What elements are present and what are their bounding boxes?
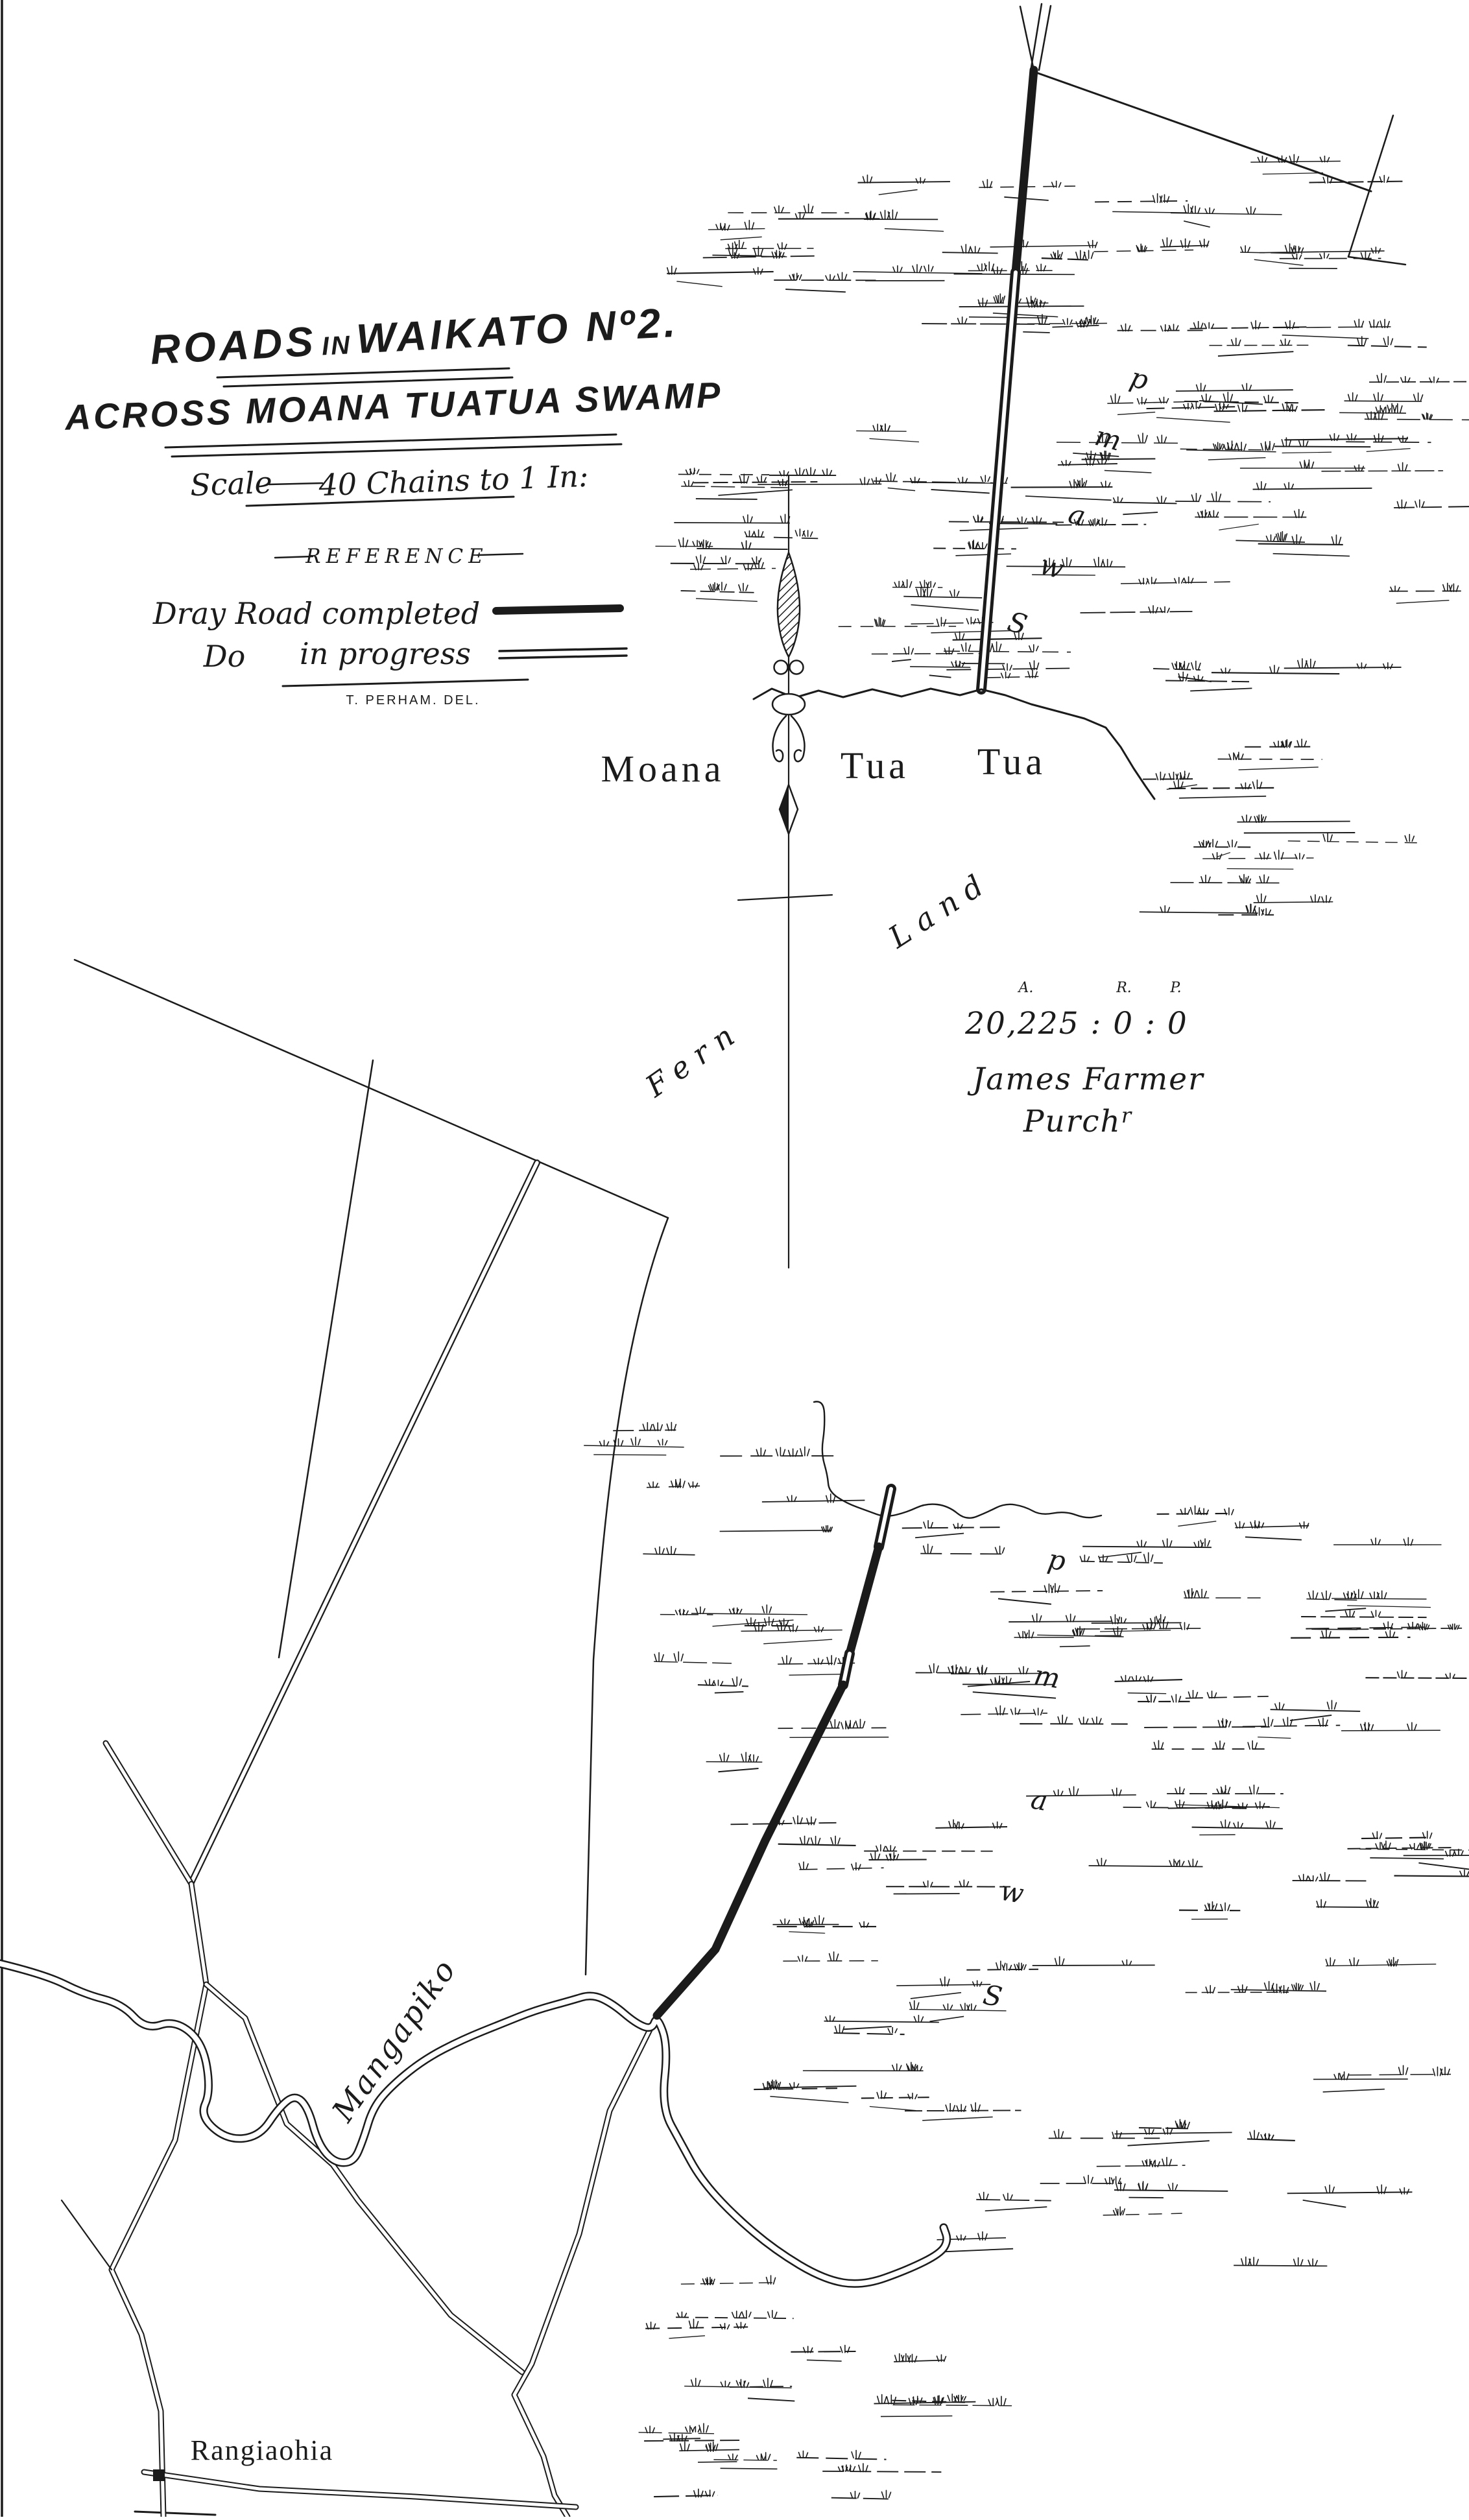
road-network [62,1743,657,2517]
survey-map-canvas: ROADSINWAIKATO Nº2. ACROSS MOANA TUATUA … [0,0,1469,2517]
river-label: Mangapiko [325,1952,464,2129]
needle-scroll [773,716,786,761]
swamp-tuft [1140,904,1258,913]
swamp-tuft [763,2080,856,2088]
swamp-tuft [1121,577,1230,584]
swamp-tuft [1186,442,1276,460]
swamp-tuft [1014,1630,1074,1638]
swamp-tuft [892,2394,966,2403]
swamp-tuft [1195,510,1307,530]
road-gap [144,2472,576,2507]
swamp-tuft [1020,1715,1127,1724]
swamp-tuft [655,538,713,547]
swamp-tuft [644,2434,742,2441]
swamp-tuft [1247,2130,1295,2141]
swamp-tuft [1284,659,1402,669]
swamp-word-layer: SwampSwamp [981,361,1152,2013]
swamp-tuft [1157,1506,1234,1526]
swamp-tuft [1114,2181,1228,2198]
swamp-tuft [1271,1700,1361,1720]
map-sheet: ROADSINWAIKATO Nº2. ACROSS MOANA TUATUA … [0,0,1469,2520]
swamp-tuft [1037,1626,1123,1646]
needle-diamond-fill [780,785,789,834]
swamp-tuft [861,2091,929,2110]
swamp-tuft [990,1584,1103,1604]
legend-item-inprogress: in progress [300,636,471,671]
swamp-tuft [720,1447,839,1456]
swamp-tuft [712,246,763,256]
area-header-roods: R. [1116,980,1132,996]
swamp-tuft [645,2319,748,2338]
swamp-word-letter: a [1029,1783,1050,1817]
swamp-tuft [1339,403,1406,413]
swamp-tuft [1209,338,1308,356]
swamp-tuft [894,2354,946,2362]
swamp-tuft [1171,204,1282,227]
needle-ring [790,661,804,674]
swamp-tuft [886,1880,1010,1894]
purchaser-name: James Farmer [967,1062,1204,1097]
swamp-tuft [1288,833,1418,843]
swamp-tuft [678,468,769,475]
swamp-tuft [674,514,789,523]
swamp-tuft [584,1437,684,1455]
swamp-tuft [796,2451,886,2460]
purchaser-title-base: Purch [1023,1104,1121,1139]
swamp-tuft [949,514,1064,530]
swamp-tuft [903,587,982,610]
swamp-word-letter: a [1065,497,1089,532]
road-casing-line [1031,4,1042,67]
title-underline [217,368,509,377]
road-casing-line [1039,6,1051,70]
needle-scroll [791,716,804,761]
swamp-tuft [1192,1820,1283,1835]
swamp-tuft [1042,250,1093,260]
title-part3: WAIKATO Nº2. [355,299,680,363]
swamp-tuft [772,1916,839,1933]
swamp-tuft [856,424,919,442]
swamp-tuft [681,582,758,602]
purchaser-title-sup: r [1121,1103,1132,1128]
settlement-label: Rangiaohia [191,2434,333,2466]
swamp-tuft [987,670,1040,678]
swamp-word-letter: w [1036,549,1067,586]
swamp-tuft [778,211,880,219]
swamp-tuft [708,220,765,240]
swamp-tuft [1097,2157,1186,2167]
swamp-tuft [1169,780,1278,798]
swamp-tuft [1170,874,1282,883]
swamp-tuft [1094,244,1194,252]
swamp-name-word2: Tua [841,744,909,787]
swamp-tuft [1113,496,1176,514]
swamp-tuft [1365,1670,1469,1678]
swamp-tuft [1040,2175,1122,2183]
swamp-tuft [839,617,956,626]
scale-value: 40 Chains to 1 In: [318,458,590,503]
swamp-tuft [902,1521,1000,1538]
swamp-word-letter: w [998,1874,1027,1910]
swamp-tuft [966,1961,1038,1970]
swamp-texture-layer [584,154,1469,2499]
swamp-name-word3: Tua [977,741,1046,783]
area-value: 20,225 : 0 : 0 [964,1006,1188,1041]
north-needle-icon [738,475,832,1268]
road-gap [106,1743,191,1884]
swamp-tuft [758,477,881,484]
swamp-tuft [1284,434,1408,441]
swamp-tuft [1260,244,1385,253]
swamp-tuft [916,1663,968,1673]
swamp-tuft [731,1816,839,1825]
swamp-tuft [824,2015,939,2030]
dray-road-completed [850,1547,879,1654]
swamp-tuft [706,1752,763,1772]
swamp-tuft [1077,1620,1200,1636]
swamp-tuft [1344,392,1423,401]
meridian-cross-tick [738,895,832,900]
swamp-tuft [1107,394,1184,415]
swamp-tuft [1369,374,1469,383]
swamp-tuft [654,1652,732,1663]
swamp-tuft [1153,661,1212,682]
dray-road-completed [657,1685,843,2015]
swamp-tuft [691,1605,807,1626]
needle-blade [778,553,800,657]
swamp-word-letter: m [1092,420,1125,457]
swamp-tuft [720,1526,833,1532]
dray-road-south [657,1489,891,2015]
swamp-tuft [1339,1623,1462,1630]
swamp-tuft [1403,1849,1469,1870]
parcel-division [279,1060,373,1658]
swamp-tuft [1231,1981,1326,1991]
swamp-tuft [1007,557,1125,575]
area-header-perches: P. [1169,980,1181,996]
swamp-tuft [703,250,816,258]
swamp-tuft [1346,434,1431,452]
swamp-tuft [676,2311,794,2318]
swamp-tuft [1245,739,1316,748]
swamp-tuft [778,1719,890,1737]
swamp-tuft [1139,2119,1190,2128]
swamp-tuft [1095,194,1188,213]
swamp-tuft [1341,1722,1440,1731]
swamp-tuft [922,315,1050,324]
swamp-tuft [1147,401,1236,422]
parcel-boundary [586,1218,668,1975]
swamp-tuft [762,1494,865,1503]
swamp-tuft [872,647,979,661]
swamp-tuft [643,1547,695,1555]
swamp-tuft [728,204,849,213]
swamp-tuft [778,1836,856,1846]
swamp-tuft [1361,1831,1432,1838]
swamp-tuft [1235,1521,1309,1540]
swamp-word-letter: p [1045,1543,1068,1577]
swamp-tuft [1348,2065,1451,2076]
title-part2: IN [321,331,352,361]
swamp-tuft [1082,1539,1212,1558]
swamp-tuft [660,1610,713,1615]
swamp-word-letter: S [1005,606,1031,641]
swamp-tuft [697,541,787,549]
terrain-label-fern: Fern [639,1013,749,1104]
swamp-tuft [667,266,773,286]
purchaser-title: Purchr [1023,1103,1132,1139]
swamp-tuft [1237,814,1355,833]
swamp-tuft [1254,894,1333,903]
swamp-tuft [713,2453,777,2469]
swamp-tuft [1326,1957,1436,1966]
swamp-tuft [799,1862,884,1870]
swamp-tuft [920,1544,1007,1554]
swamp-tuft [1218,908,1274,916]
swamp-tuft [783,1952,878,1961]
swamp-tuft [1236,532,1305,542]
dray-road-completed [1016,70,1034,272]
road-gap [206,1984,522,2372]
swamp-tuft [1152,1741,1267,1749]
swamp-tuft [1321,462,1443,471]
swamp-tuft [822,2464,941,2472]
swamp-tuft [1033,1956,1155,1966]
swamp-tuft [639,2423,714,2439]
swamp-name-word1: Moana [601,748,724,790]
swamp-tuft [803,2062,924,2071]
swamp-word-letter: m [1032,1659,1063,1694]
swamp-tuft [1394,500,1469,508]
swamp-tuft [1234,2257,1327,2266]
swamp-tuft [831,2490,891,2499]
swamp-tuft [1011,479,1113,500]
swamp-tuft [1175,492,1271,502]
swamp-tuft [1274,319,1391,339]
swamp-tuft [769,468,836,476]
swamp-tuft [896,1977,990,1999]
swamp-tuft [935,1820,1007,1829]
swamp-tuft [654,2489,717,2497]
swamp-word-letter: p [1127,361,1152,396]
swamp-tuft [1143,771,1197,789]
swamp-tuft [911,617,1011,633]
legend-swatch-inprogress [499,648,627,651]
building-marker [153,2469,165,2481]
area-header-acres: A. [1018,980,1034,996]
swamp-tuft [976,2193,1051,2211]
title-part1: ROADS [149,318,318,373]
legend-underline [283,680,528,686]
swamp-word-letter: S [981,1979,1005,2013]
swamp-tuft [874,473,993,491]
swamp-tuft [1179,1902,1240,1920]
swamp-tuft [1080,1552,1162,1563]
swamp-tuft [1138,1694,1189,1702]
swamp-tuft [1089,1859,1203,1867]
swamp-tuft [1309,175,1404,183]
swamp-tuft [868,1852,926,1860]
swamp-tuft [774,272,876,292]
scale-dash [269,483,322,484]
swamp-tuft [1160,238,1209,248]
road [112,1884,206,2517]
road-strip-gap [191,1163,537,1883]
swamp-tuft [1306,1622,1433,1629]
swamp-tuft [745,529,818,538]
river-line [0,1964,947,2283]
swamp-tuft [1306,1591,1366,1611]
swamp-tuft [892,580,942,588]
swamp-tuft [933,540,1016,556]
map-subtitle: ACROSS MOANA TUATUA SWAMP [63,374,723,437]
swamp-tuft [864,1845,993,1851]
swamp-tuft [1218,752,1322,770]
swamp-tuft [961,1706,1047,1715]
swamp-tuft [1317,1899,1379,1908]
swamp-tuft [1186,1691,1269,1698]
swamp-tuft [730,2378,794,2401]
swamp-tuft [671,555,763,564]
swamp-tuft [1293,1872,1367,1881]
swamp-tuft [1240,460,1365,468]
swamp-tuft [944,642,1071,664]
swamp-tuft [1184,1589,1260,1599]
swamp-tuft [1115,2128,1232,2146]
scale-label: Scale [189,465,272,503]
swamp-tuft [1081,606,1193,613]
swamp-tuft [942,244,998,254]
reference-heading: REFERENCE [305,545,488,568]
swamp-tuft [946,661,1069,671]
swamp-tuft [990,240,1097,248]
swamp-tuft [681,2276,776,2285]
map-title: ROADSINWAIKATO Nº2. [149,299,680,374]
swamp-tuft [1301,1610,1427,1630]
swamp-tuft [690,560,776,569]
swamp-tuft [613,1422,676,1431]
swamp-tuft [1333,1538,1441,1545]
boundary-line [1348,257,1405,265]
swamp-tuft [1258,535,1350,556]
boundary-line [1036,73,1371,191]
swamp-tuft [858,175,950,195]
swamp-tuft [698,1677,748,1693]
legend-item-do: Do [203,639,246,674]
swamp-tuft [1115,1676,1182,1694]
swamp-tuft [745,1617,793,1626]
boundary-line [62,2200,112,2270]
swamp-tuft [1193,839,1253,857]
swamp-tuft [1117,324,1206,331]
terrain-label-land: Land [881,863,997,955]
river-line-gap [0,1964,947,2283]
swamp-tuft [1287,2185,1413,2207]
parcel-boundary [75,960,668,1218]
swamp-edge-line [754,689,1154,799]
legend-swatch-completed [496,608,620,611]
swamp-tuft [754,2082,848,2103]
swamp-tuft [1212,665,1339,674]
swamp-tuft [1009,1613,1112,1622]
swamp-tuft [1389,583,1464,603]
legend-swatch-inprogress [499,656,627,658]
swamp-tuft [905,2103,1021,2121]
swamp-tuft [1202,850,1313,869]
sheet-corner-tick [135,2512,215,2515]
swamp-tuft [1103,2207,1182,2215]
swamp-tuft [777,1919,876,1927]
swamp-tuft [791,2346,855,2362]
swamp-tuft [1394,1868,1469,1876]
draughtsman-credit: T. PERHAM. DEL. [346,693,480,707]
needle-ring [774,661,788,674]
swamp-tuft [953,631,1042,640]
swamp-tuft [1332,1589,1431,1607]
swamp-tuft [853,265,982,281]
swamp-tuft [1253,482,1372,490]
needle-eye [772,694,805,715]
road-gap [514,2015,657,2517]
swamp-tuft [1291,1630,1410,1638]
legend-item-completed: Dray Road completed [152,596,480,631]
swamp-tuft [1180,441,1261,450]
swamp-tuft [647,1479,700,1488]
swamp-tuft [968,261,1055,270]
swamp-tuft [1167,1785,1284,1808]
